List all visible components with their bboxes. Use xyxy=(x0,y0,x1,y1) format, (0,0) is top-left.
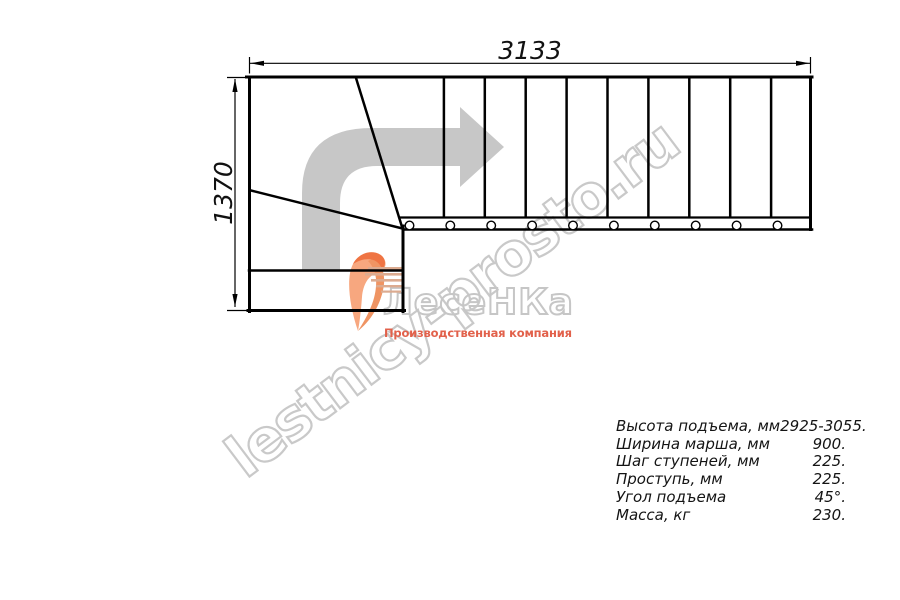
dimension-height: 1370 xyxy=(209,78,247,311)
spec-value: 900. xyxy=(813,436,846,454)
dimension-width: 3133 xyxy=(250,36,811,74)
spec-label: Шаг ступеней, мм xyxy=(616,453,760,471)
spec-label: Масса, кг xyxy=(616,507,690,525)
dimension-height-label: 1370 xyxy=(209,161,238,225)
spec-table: Высота подъема, мм 2925-3055. Ширина мар… xyxy=(616,418,846,524)
spec-row: Масса, кг 230. xyxy=(616,507,846,525)
spec-value: 230. xyxy=(813,507,846,525)
spec-row: Ширина марша, мм 900. xyxy=(616,436,846,454)
spec-label: Угол подъема xyxy=(616,489,726,507)
spec-row: Угол подъема 45°. xyxy=(616,489,846,507)
spec-label: Проступь, мм xyxy=(616,471,723,489)
spec-value: 45°. xyxy=(815,489,846,507)
spec-row: Шаг ступеней, мм 225. xyxy=(616,453,846,471)
logo-swoosh-icon xyxy=(349,252,402,331)
spec-value: 2925-3055. xyxy=(780,418,867,436)
spec-value: 225. xyxy=(813,471,846,489)
spec-label: Высота подъема, мм xyxy=(616,418,780,436)
spec-row: Проступь, мм 225. xyxy=(616,471,846,489)
staircase-drawing-page: lestnicy-prosto.ru ЛесеНКа Производствен… xyxy=(0,0,900,600)
spec-value: 225. xyxy=(813,453,846,471)
dimension-width-label: 3133 xyxy=(498,36,562,65)
spec-row: Высота подъема, мм 2925-3055. xyxy=(616,418,846,436)
spec-label: Ширина марша, мм xyxy=(616,436,770,454)
